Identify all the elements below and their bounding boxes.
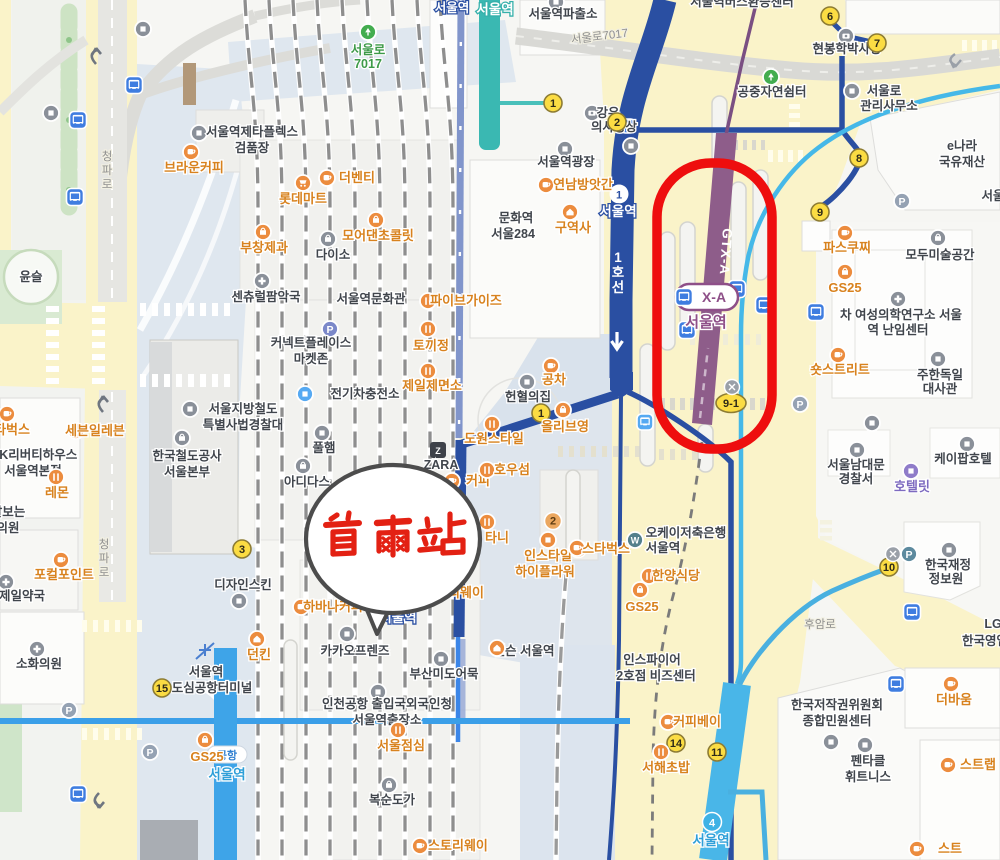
svg-text:서울: 서울 [981,188,1000,203]
svg-text:Z: Z [435,446,441,456]
svg-text:헌혈의집: 헌혈의집 [505,389,551,404]
svg-text:한국저작권위원회: 한국저작권위원회 [791,697,883,712]
svg-text:1: 1 [616,190,622,202]
svg-text:토끼정: 토끼정 [413,338,449,353]
svg-text:W: W [631,536,640,546]
svg-text:정보원: 정보원 [929,571,964,586]
svg-text:서울로: 서울로 [867,83,902,98]
svg-text:스트랩: 스트랩 [960,757,996,772]
svg-text:8: 8 [856,153,862,165]
svg-text:브라운커피: 브라운커피 [164,160,224,175]
svg-text:3: 3 [239,544,245,556]
svg-text:카카오프렌즈: 카카오프렌즈 [320,643,390,658]
svg-text:서울남대문: 서울남대문 [827,457,885,472]
svg-text:서해초밥: 서해초밥 [642,760,690,775]
svg-text:부창제과: 부창제과 [240,240,288,255]
svg-text:복순도가: 복순도가 [369,792,416,807]
svg-text:P: P [796,399,803,411]
svg-text:주한독일: 주한독일 [917,367,963,382]
svg-text:경찰서: 경찰서 [839,471,874,486]
svg-text:윤슬: 윤슬 [19,269,43,284]
svg-text:올리브영: 올리브영 [541,419,589,434]
svg-text:커피베이: 커피베이 [673,714,721,729]
svg-text:한양식당: 한양식당 [652,568,700,583]
svg-text:6: 6 [827,11,833,23]
svg-text:호: 호 [612,265,625,280]
svg-text:공차: 공차 [542,372,566,387]
svg-text:P: P [65,705,72,717]
svg-text:포컬포인트: 포컬포인트 [34,567,94,582]
svg-text:세븐일레븐: 세븐일레븐 [65,423,125,438]
svg-text:휘트니스: 휘트니스 [845,769,892,784]
svg-text:9-1: 9-1 [723,398,739,410]
svg-text:7017: 7017 [354,57,382,71]
svg-text:LG: LG [984,617,1000,631]
svg-text:P: P [326,324,333,336]
svg-text:호텔릿: 호텔릿 [894,479,930,494]
svg-text:파: 파 [102,164,113,177]
svg-text:제일제면소: 제일제면소 [402,378,462,393]
svg-text:더벤티: 더벤티 [339,170,375,185]
svg-text:2호점 비즈센터: 2호점 비즈센터 [616,668,695,683]
svg-text:종합민원센터: 종합민원센터 [802,713,871,728]
svg-text:던킨: 던킨 [247,647,271,662]
svg-text:센츄럴팜악국: 센츄럴팜악국 [231,289,301,304]
svg-text:7: 7 [874,38,880,50]
svg-text:서울역파출소: 서울역파출소 [528,6,598,21]
svg-text:1: 1 [614,250,622,265]
svg-text:서울역: 서울역 [599,203,636,219]
svg-text:롯데마트: 롯데마트 [279,191,327,206]
svg-text:서울역광장: 서울역광장 [537,154,595,169]
svg-text:후암로: 후암로 [804,618,836,631]
svg-text:한국영업: 한국영업 [962,633,1000,648]
svg-text:대사관: 대사관 [923,381,958,396]
svg-text:14: 14 [670,738,683,750]
svg-text:4: 4 [709,818,716,830]
svg-text:역 난임센터: 역 난임센터 [868,322,929,337]
svg-text:인스타일: 인스타일 [524,548,572,563]
svg-text:서울역: 서울역 [476,1,513,17]
svg-text:서울역버스환승센터: 서울역버스환승센터 [690,0,794,9]
svg-text:P: P [898,196,905,208]
svg-text:청: 청 [102,150,113,163]
svg-text:2: 2 [614,117,620,129]
svg-text:디자인스킨: 디자인스킨 [214,577,272,592]
svg-text:인스파이어: 인스파이어 [623,652,681,667]
svg-text:10: 10 [883,562,895,574]
svg-text:파스쿠찌: 파스쿠찌 [823,240,871,255]
svg-text:스토리웨이: 스토리웨이 [428,838,488,853]
svg-text:GS25: GS25 [828,280,861,295]
svg-text:펜타클: 펜타클 [851,753,886,768]
svg-text:서울점심: 서울점심 [377,738,425,753]
svg-text:호우섬: 호우섬 [494,462,530,477]
svg-text:11: 11 [711,747,723,759]
svg-text:서울역: 서울역 [685,314,726,331]
svg-text:GS25: GS25 [625,599,658,614]
svg-text:2: 2 [550,516,556,528]
svg-text:다이소: 다이소 [316,247,351,262]
svg-text:국유재산: 국유재산 [939,154,986,169]
svg-text:서울역문화관: 서울역문화관 [336,291,406,306]
svg-text:스트: 스트 [938,841,962,856]
svg-text:P: P [146,747,153,759]
svg-text:소화의원: 소화의원 [16,656,62,671]
svg-text:레몬: 레몬 [45,485,69,500]
svg-text:GS25: GS25 [190,749,223,764]
svg-text:차 여성의학연구소 서울: 차 여성의학연구소 서울 [840,307,962,322]
svg-text:모두미술공간: 모두미술공간 [905,247,975,262]
svg-text:로: 로 [102,179,113,191]
svg-text:1: 1 [550,98,556,110]
svg-text:아디다스: 아디다스 [284,474,331,489]
svg-text:서울역: 서울역 [435,0,470,15]
svg-text:관리사무소: 관리사무소 [860,98,918,113]
svg-text:부산미도어묵: 부산미도어묵 [409,666,479,681]
svg-text:파이브가이즈: 파이브가이즈 [430,293,502,308]
svg-text:로: 로 [99,567,110,579]
svg-text:연남방앗간: 연남방앗간 [553,177,613,192]
svg-text:청: 청 [99,538,110,551]
svg-text:더바움: 더바움 [936,692,972,707]
svg-text:서울로: 서울로 [351,42,386,57]
svg-text:구역사: 구역사 [555,220,591,235]
svg-text:P: P [905,549,912,561]
svg-text:전기차충전소: 전기차충전소 [330,386,400,401]
svg-text:한국재정: 한국재정 [925,557,971,572]
svg-text:서울284: 서울284 [491,226,535,241]
svg-text:서울역: 서울역 [189,664,224,679]
svg-text:숏스트리트: 숏스트리트 [810,362,870,377]
svg-text:문화역: 문화역 [499,210,534,225]
svg-text:타벅스: 타벅스 [0,422,30,437]
svg-text:X-A: X-A [702,289,726,305]
svg-text:스타벅스: 스타벅스 [582,541,630,556]
svg-text:풀햄: 풀햄 [312,440,335,455]
svg-text:오케이저축은행: 오케이저축은행 [646,525,727,540]
svg-text:9: 9 [817,207,823,219]
svg-text:모어댄초콜릿: 모어댄초콜릿 [342,228,414,243]
svg-text:e나라: e나라 [947,138,977,153]
svg-text:선: 선 [612,280,624,295]
svg-text:15: 15 [156,683,168,695]
svg-text:도심공항터미널: 도심공항터미널 [172,680,253,695]
svg-text:파: 파 [99,552,110,565]
svg-text:도원스타일: 도원스타일 [464,431,524,446]
svg-text:서울역: 서울역 [646,540,681,555]
svg-text:케이팝호텔: 케이팝호텔 [934,451,992,466]
svg-text:하이플라워: 하이플라워 [515,564,575,579]
svg-text:서울역: 서울역 [208,766,245,782]
svg-text:제일약국: 제일약국 [0,588,45,603]
svg-text:공중자연쉼터: 공중자연쉼터 [737,84,806,99]
svg-text:서울역: 서울역 [692,832,729,848]
svg-text:타니: 타니 [485,530,509,545]
